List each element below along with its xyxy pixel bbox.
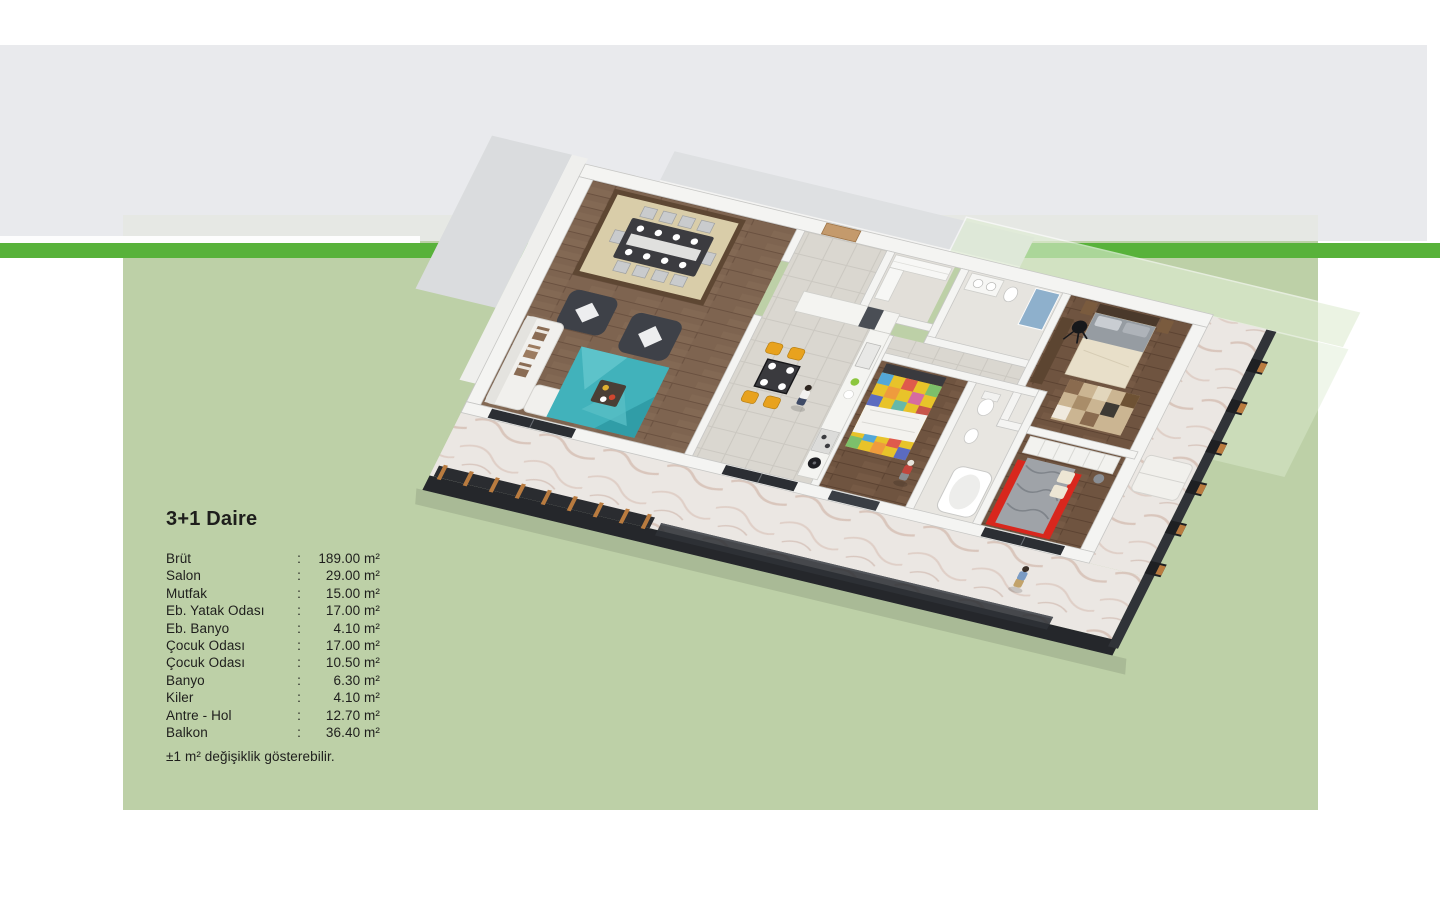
area-row-mutfak: Mutfak:15.00 m² xyxy=(166,585,380,602)
area-row-salon: Salon:29.00 m² xyxy=(166,567,380,584)
area-row-kiler: Kiler:4.10 m² xyxy=(166,689,380,706)
unit-title: 3+1 Daire xyxy=(166,508,380,530)
area-row-banyo: Banyo:6.30 m² xyxy=(166,672,380,689)
brochure-page: 3+1 Daire Brüt:189.00 m² Salon:29.00 m² … xyxy=(0,0,1440,900)
area-row-eb-banyo: Eb. Banyo:4.10 m² xyxy=(166,620,380,637)
area-row-cocuk1: Çocuk Odası:17.00 m² xyxy=(166,637,380,654)
area-row-eb-yatak: Eb. Yatak Odası:17.00 m² xyxy=(166,602,380,619)
tolerance-footnote: ±1 m² değişiklik gösterebilir. xyxy=(166,749,380,764)
gray-band-bottom-gap xyxy=(0,236,420,243)
area-row-brut: Brüt:189.00 m² xyxy=(166,550,380,567)
unit-info-panel: 3+1 Daire Brüt:189.00 m² Salon:29.00 m² … xyxy=(166,508,380,764)
floor-plan-render xyxy=(378,128,1370,748)
area-row-antre: Antre - Hol:12.70 m² xyxy=(166,707,380,724)
area-row-balkon: Balkon:36.40 m² xyxy=(166,724,380,741)
area-table: Brüt:189.00 m² Salon:29.00 m² Mutfak:15.… xyxy=(166,550,380,741)
area-row-cocuk2: Çocuk Odası:10.50 m² xyxy=(166,654,380,671)
